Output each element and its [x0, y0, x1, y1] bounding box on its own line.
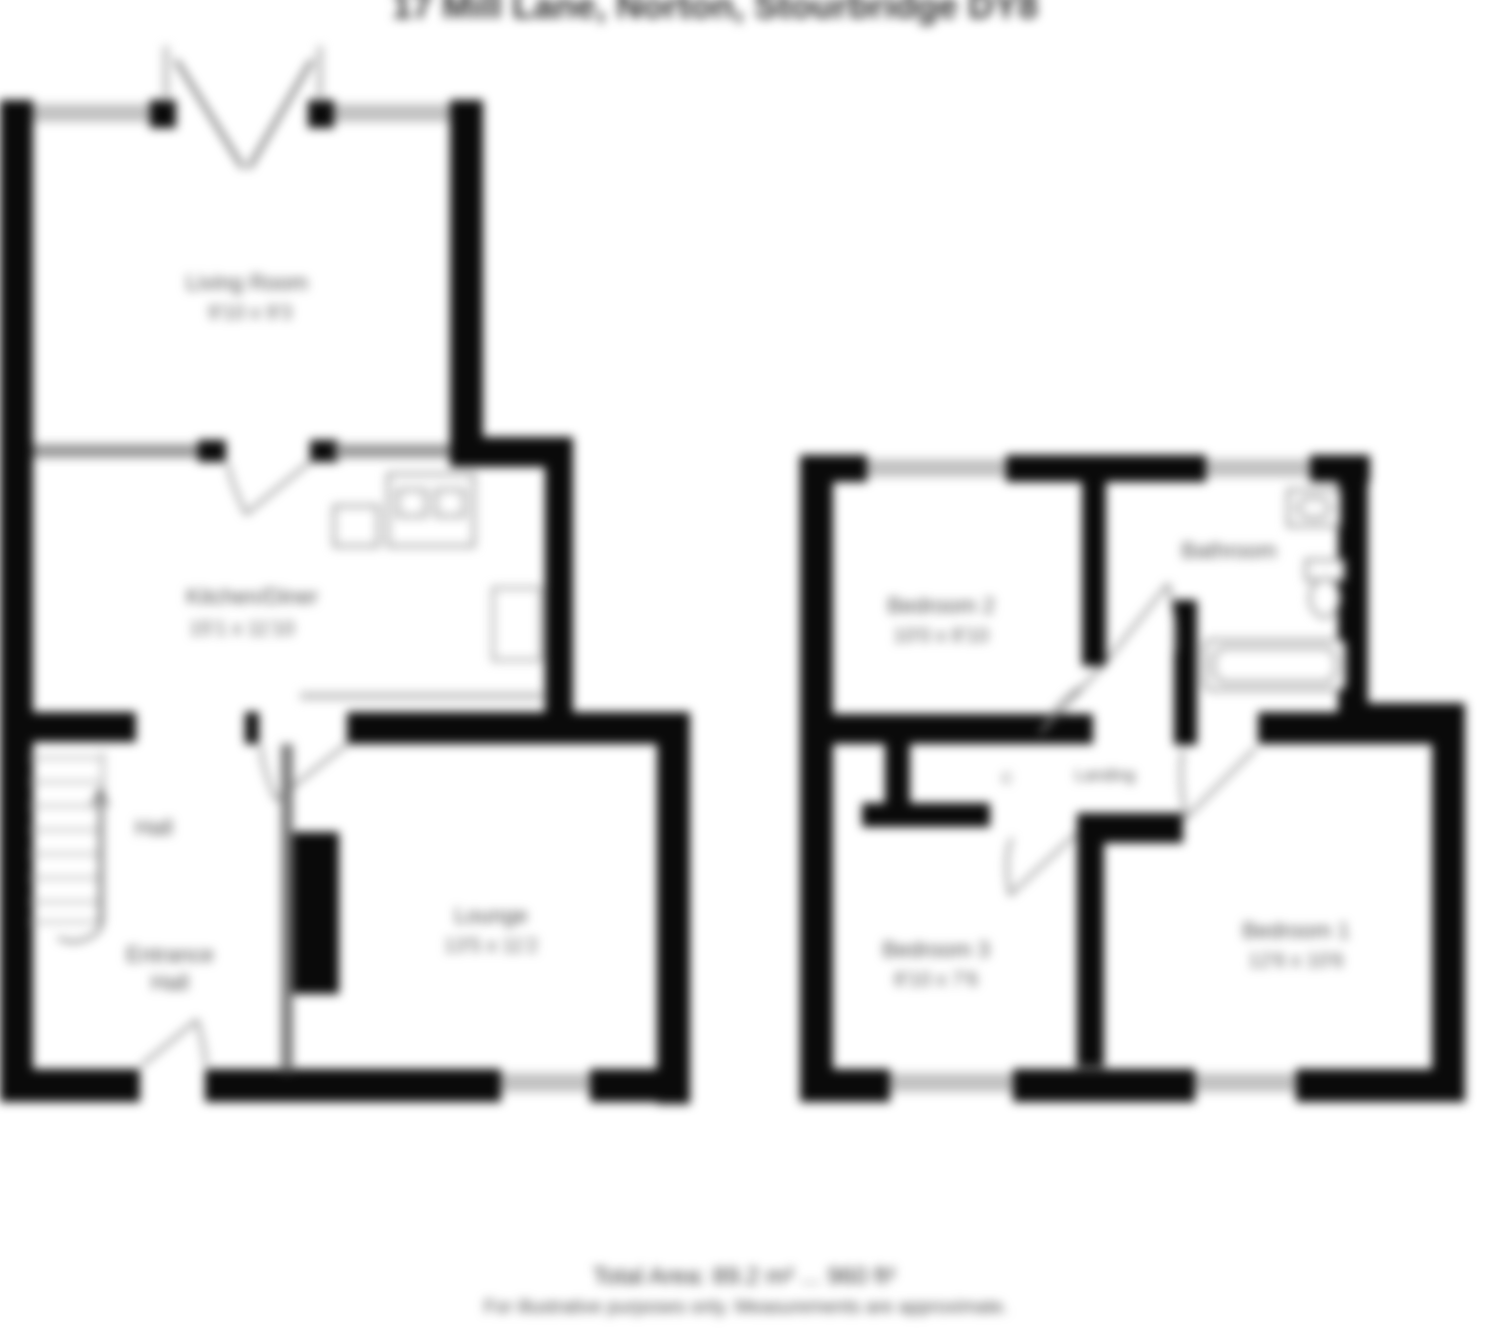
french-doors-icon: [166, 46, 320, 168]
stairs-direction-arrow: [58, 790, 108, 942]
wash-basin-icon: [1288, 490, 1340, 526]
floorplan-page: 17 Mill Lane, Norton, Stourbridge DY8: [0, 0, 1493, 1333]
room-label-landing: Landing: [1075, 767, 1136, 786]
total-area-text: Total Area: 89.2 m² ... 960 ft²: [593, 1263, 896, 1291]
room-dims-bedroom-1: 12'6 x 10'6: [1248, 950, 1344, 972]
floorplan-blur-layer: 17 Mill Lane, Norton, Stourbridge DY8: [0, 0, 1493, 1333]
toilet-icon: [1306, 560, 1344, 617]
bathtub-icon: [1205, 640, 1345, 690]
stairs-icon: [30, 752, 103, 925]
room-label-bathroom: Bathroom: [1181, 539, 1276, 563]
room-dims-living-room: 9'10 x 9'3: [208, 302, 292, 324]
room-label-bedroom-3: Bedroom 3: [882, 938, 990, 962]
room-dims-bedroom-2: 10'0 x 8'10: [893, 625, 989, 647]
room-dims-kitchen-diner: 15'1 x 11'10: [189, 618, 294, 640]
room-label-hall: Hall: [135, 816, 173, 840]
room-dims-lounge: 13'5 x 11'2: [444, 935, 538, 957]
cooker-icon: [334, 506, 378, 546]
room-label-bedroom-2: Bedroom 2: [887, 594, 995, 618]
room-label-lounge: Lounge: [454, 904, 527, 928]
radiator-icon: [493, 588, 541, 660]
disclaimer-text: For illustrative purposes only. Measurem…: [484, 1297, 1009, 1319]
sink-unit-icon: [388, 474, 474, 546]
room-dims-bedroom-3: 8'10 x 7'6: [894, 969, 978, 991]
room-label-kitchen-diner: Kitchen/Diner: [186, 585, 318, 609]
room-label-living-room: Living Room: [186, 271, 308, 295]
room-label-cupboard: C: [1002, 771, 1013, 788]
floorplan-symbols: [0, 0, 1493, 1333]
door-swing: [1007, 584, 1256, 895]
room-label-entrance-2: Hall: [151, 971, 189, 995]
room-label-bedroom-1: Bedroom 1: [1242, 919, 1350, 943]
room-label-entrance: Entrance: [126, 943, 214, 967]
